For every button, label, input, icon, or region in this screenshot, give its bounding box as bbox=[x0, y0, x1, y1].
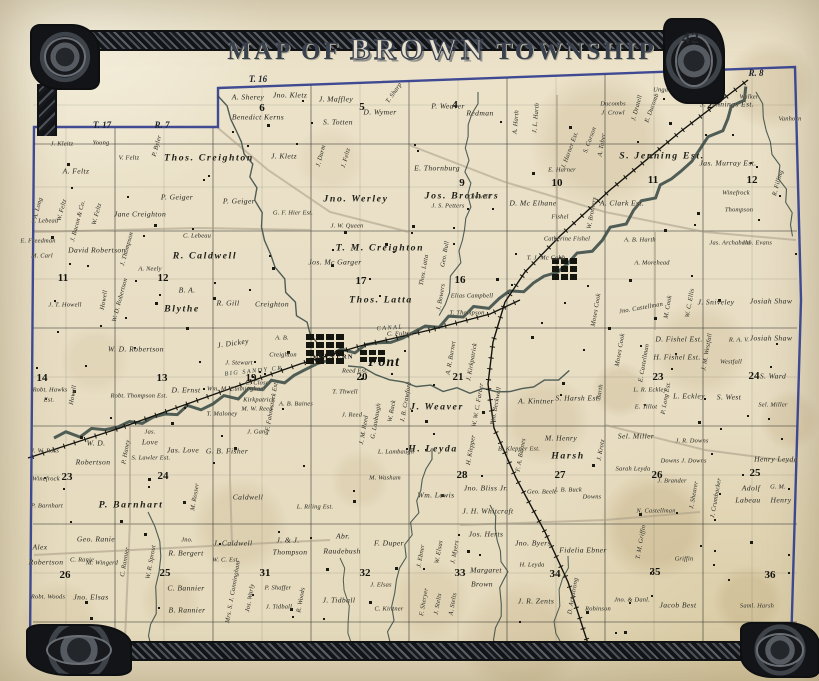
house-dot bbox=[433, 384, 435, 386]
parcel-owner-label: J. Maffley bbox=[319, 95, 353, 104]
parcel-owner-label: Abr. bbox=[336, 532, 350, 541]
house-dot bbox=[453, 243, 455, 245]
section-number: 35 bbox=[650, 566, 661, 578]
house-dot bbox=[788, 488, 790, 490]
house-dot bbox=[80, 436, 83, 439]
house-dot bbox=[479, 554, 481, 556]
section-number: 26 bbox=[60, 569, 71, 581]
parcel-owner-label: Jane Creighton bbox=[114, 210, 166, 219]
house-dot bbox=[492, 208, 494, 210]
railroad-line bbox=[28, 300, 520, 458]
house-dot bbox=[143, 235, 145, 237]
parcel-owner-label: A. Clark Est. bbox=[600, 199, 644, 208]
parcel-owner-label: J. Sniveley bbox=[698, 298, 735, 307]
house-dot bbox=[411, 232, 413, 234]
parcel-owner-label: L. Eckley bbox=[673, 392, 705, 401]
parcel-owner-label: Jno. & Danl. bbox=[614, 597, 650, 604]
parcel-owner-label: J. Caldwell bbox=[214, 539, 253, 548]
parcel-owner-label: J. Reed bbox=[342, 412, 362, 419]
house-dot bbox=[303, 465, 305, 467]
parcel-owner-label: Winefrock bbox=[722, 190, 749, 197]
parcel-owner-label: A. B. bbox=[275, 335, 289, 342]
parcel-owner-label: T. Thwell bbox=[332, 389, 357, 396]
parcel-owner-label: N. Castellman bbox=[636, 508, 675, 515]
parcel-owner-label: L. Riling Est. bbox=[297, 504, 334, 511]
parcel-owner-label: Labeau bbox=[735, 496, 760, 505]
house-dot bbox=[203, 179, 205, 181]
parcel-owner-label: Geo. Ranie bbox=[77, 535, 115, 544]
house-dot bbox=[221, 435, 223, 437]
parcel-owner-label: A. B. Harth bbox=[624, 237, 656, 244]
house-dot bbox=[562, 382, 565, 385]
house-dot bbox=[587, 285, 589, 287]
parcel-owner-label: Jno. Werley bbox=[323, 194, 388, 205]
village-block bbox=[552, 266, 559, 272]
parcel-owner-label: R. Gill bbox=[216, 299, 239, 308]
parcel-owner-label: J. W. Queen bbox=[331, 223, 364, 230]
section-number: 11 bbox=[648, 174, 658, 186]
house-dot bbox=[663, 98, 665, 100]
parcel-owner-label: P. Weaver bbox=[431, 102, 465, 111]
house-dot bbox=[750, 541, 753, 544]
parcel-owner-label: J. Tidball bbox=[323, 596, 356, 605]
house-dot bbox=[186, 327, 189, 330]
house-dot bbox=[788, 572, 790, 574]
house-dot bbox=[564, 302, 566, 304]
parcel-owner-label: E. Thornburg bbox=[414, 164, 460, 173]
parcel-owner-label: Walker bbox=[739, 94, 758, 101]
parcel-owner-label: V. Feltz bbox=[119, 155, 140, 162]
section-number: 23 bbox=[653, 371, 664, 383]
house-dot bbox=[36, 367, 38, 369]
parcel-owner-label: A. B. Baines bbox=[279, 401, 313, 408]
border-corner-bottom-right bbox=[740, 622, 819, 678]
parcel-owner-label: Robt. Hawks bbox=[33, 387, 68, 394]
house-dot bbox=[391, 373, 393, 375]
house-dot bbox=[629, 279, 632, 282]
parcel-owner-label: Jos. Mc Garger bbox=[308, 258, 361, 267]
parcel-owner-label: Alex bbox=[32, 543, 47, 552]
parcel-owner-label: F. Duper bbox=[374, 539, 404, 548]
house-dot bbox=[249, 289, 251, 291]
border-corner-bottom-left bbox=[26, 624, 132, 676]
section-number: 17 bbox=[356, 275, 367, 287]
village-block bbox=[316, 342, 324, 348]
parcel-owner-label: J. Weaver bbox=[410, 402, 464, 413]
house-dot bbox=[184, 407, 186, 409]
map-title: MAP OF BROWN TOWNSHIP bbox=[222, 33, 662, 67]
parcel-owner-label: E. Tillot bbox=[635, 404, 657, 411]
house-dot bbox=[310, 537, 312, 539]
section-number: 12 bbox=[747, 174, 758, 186]
house-dot bbox=[69, 263, 71, 265]
parcel-owner-label: Love bbox=[142, 438, 158, 447]
house-dot bbox=[135, 280, 137, 282]
house-dot bbox=[148, 478, 151, 481]
parcel-owner-label: Elias Campbell bbox=[451, 293, 493, 300]
house-dot bbox=[615, 632, 617, 634]
house-dot bbox=[496, 278, 499, 281]
parcel-owner-label: Jacob Best bbox=[659, 601, 696, 610]
parcel-owner-label: S. Ward bbox=[760, 372, 786, 381]
parcel-owner-label: Downs bbox=[583, 494, 602, 501]
house-dot bbox=[541, 322, 543, 324]
house-dot bbox=[453, 227, 455, 229]
parcel-owner-label: Jno. Elsas bbox=[73, 593, 108, 602]
section-number: 32 bbox=[360, 567, 371, 579]
house-dot bbox=[637, 141, 639, 143]
house-dot bbox=[369, 601, 372, 604]
house-dot bbox=[203, 388, 205, 390]
village-block bbox=[336, 334, 344, 340]
house-dot bbox=[87, 265, 89, 267]
house-dot bbox=[720, 428, 722, 430]
parcel-owner-label: Sarah Leyda bbox=[616, 466, 651, 473]
house-dot bbox=[125, 317, 127, 319]
house-dot bbox=[788, 554, 790, 556]
house-dot bbox=[651, 595, 653, 597]
parcel-owner-label: Harsh bbox=[551, 451, 585, 462]
house-dot bbox=[458, 534, 460, 536]
parcel-owner-label: G. F. Hier Est. bbox=[273, 210, 313, 217]
parcel-owner-label: H. Fishel Est. bbox=[653, 353, 700, 362]
parcel-owner-label: Winefrock bbox=[32, 476, 59, 483]
border-band-left bbox=[37, 84, 57, 136]
parcel-owner-label: Blythe bbox=[164, 304, 200, 315]
creek-path bbox=[148, 512, 161, 658]
parcel-owner-label: Josiah Shaw bbox=[750, 334, 793, 343]
house-dot bbox=[296, 143, 298, 145]
parcel-owner-label: C. Kintner bbox=[375, 606, 404, 613]
house-dot bbox=[120, 520, 123, 523]
parcel-owner-label: J. S. Petters bbox=[431, 203, 464, 210]
house-dot bbox=[624, 631, 627, 634]
house-dot bbox=[254, 361, 256, 363]
parcel-owner-label: T. Maloney bbox=[207, 411, 238, 418]
house-dot bbox=[592, 464, 595, 467]
house-dot bbox=[698, 421, 701, 424]
parcel-owner-label: Est. bbox=[44, 397, 55, 404]
parcel-owner-label: M. Wingerd bbox=[86, 560, 118, 567]
page-number: 42 bbox=[682, 30, 700, 48]
house-dot bbox=[795, 253, 797, 255]
house-dot bbox=[127, 196, 129, 198]
house-dot bbox=[691, 275, 693, 277]
parcel-owner-label: Thos. Latta bbox=[349, 295, 413, 306]
map-title-township-name: BROWN bbox=[350, 33, 487, 66]
house-dot bbox=[148, 486, 150, 488]
house-dot bbox=[267, 124, 270, 127]
parcel-owner-label: L. Lambaugh bbox=[378, 449, 414, 456]
village-block bbox=[336, 342, 344, 348]
house-dot bbox=[272, 267, 275, 270]
parcel-owner-label: T. J. Mc Cobb bbox=[527, 255, 566, 262]
house-dot bbox=[705, 134, 707, 136]
village-block bbox=[306, 334, 314, 340]
house-dot bbox=[326, 568, 329, 571]
map-title-prefix: MAP OF bbox=[227, 38, 350, 65]
section-number: 31 bbox=[260, 567, 271, 579]
house-dot bbox=[425, 420, 428, 423]
parcel-owner-label: T. Thompson bbox=[449, 310, 484, 317]
house-dot bbox=[676, 512, 678, 514]
section-number: 4 bbox=[452, 99, 458, 111]
village-block bbox=[561, 274, 568, 280]
parcel-owner-label: A. Morehead bbox=[634, 260, 669, 267]
parcel-owner-label: Jas. Murray Est. bbox=[699, 159, 756, 168]
parcel-owner-label: D. Wymer bbox=[363, 108, 396, 117]
parcel-owner-label: Ducombs bbox=[600, 101, 626, 108]
section-number: 13 bbox=[157, 372, 168, 384]
house-dot bbox=[694, 224, 696, 226]
village-block bbox=[561, 266, 568, 272]
house-dot bbox=[714, 519, 716, 521]
house-dot bbox=[758, 219, 760, 221]
section-number: 5 bbox=[359, 101, 365, 113]
parcel-owner-label: H. Leyda bbox=[519, 562, 544, 569]
plat-map-page: A. ShereyJno. KletzJ. MaffleyT. SharpD. … bbox=[0, 0, 819, 681]
parcel-owner-label: A. Sherey bbox=[232, 93, 264, 102]
house-dot bbox=[532, 172, 535, 175]
parcel-owner-label: Robinson bbox=[585, 606, 611, 613]
parcel-owner-label: R. A. V. bbox=[729, 337, 749, 344]
parcel-owner-label: Creighton bbox=[255, 300, 289, 309]
section-number: 16 bbox=[455, 274, 466, 286]
parcel-owner-label: Young bbox=[93, 140, 110, 147]
section-number: 14 bbox=[37, 372, 48, 384]
house-dot bbox=[467, 550, 470, 553]
house-dot bbox=[232, 131, 234, 133]
section-number: 24 bbox=[158, 470, 169, 482]
parcel-owner-label: Jas. Love bbox=[167, 446, 199, 455]
parcel-owner-label: Caldwell bbox=[233, 493, 264, 502]
section-number: 24 bbox=[749, 370, 760, 382]
house-dot bbox=[779, 195, 781, 197]
village-block bbox=[360, 350, 367, 355]
parcel-owner-label: G. B. Fisher bbox=[206, 447, 248, 456]
parcel-owner-label: Thompson bbox=[725, 207, 753, 214]
section-number: 36 bbox=[765, 569, 776, 581]
parcel-owner-label: Vanhorn bbox=[778, 116, 801, 123]
parcel-owner-label: L. R. Eckley bbox=[633, 387, 666, 394]
range-township-label: R. 8 bbox=[748, 68, 763, 78]
section-number: 28 bbox=[457, 469, 468, 481]
house-dot bbox=[414, 144, 416, 146]
parcel-owner-label: J. Tidball bbox=[266, 604, 292, 611]
house-dot bbox=[711, 453, 713, 455]
house-dot bbox=[311, 122, 313, 124]
parcel-owner-label: A. Feltz bbox=[63, 167, 90, 176]
range-township-label: R. 7 bbox=[154, 120, 169, 130]
parcel-owner-label: W. D. bbox=[87, 439, 106, 448]
parcel-owner-label: Crowell bbox=[468, 194, 490, 201]
parcel-owner-label: Henry Leyda bbox=[754, 455, 798, 464]
village-block bbox=[570, 266, 577, 272]
village-block bbox=[316, 334, 324, 340]
village-name-label: Font bbox=[368, 355, 400, 371]
house-dot bbox=[71, 187, 73, 189]
section-number: 34 bbox=[550, 568, 561, 580]
house-dot bbox=[417, 150, 419, 152]
parcel-owner-label: T. M. Creighton bbox=[336, 243, 424, 254]
parcel-owner-label: Jas. bbox=[145, 429, 156, 436]
parcel-owner-label: C. Fulton bbox=[387, 331, 413, 338]
section-number: 25 bbox=[750, 467, 761, 479]
parcel-owner-label: David Robertson bbox=[68, 246, 126, 255]
parcel-owner-label: R. Caldwell bbox=[173, 251, 237, 262]
house-dot bbox=[213, 462, 215, 464]
parcel-owner-label: S. Totten bbox=[323, 118, 353, 127]
section-number: 23 bbox=[62, 471, 73, 483]
parcel-owner-label: S. West bbox=[717, 393, 741, 402]
village-block bbox=[360, 357, 367, 362]
parcel-owner-label: Catherine Fishel bbox=[544, 236, 590, 243]
parcel-owner-label: Redman bbox=[466, 109, 493, 118]
house-dot bbox=[85, 365, 87, 367]
parcel-owner-label: J. R. Zents bbox=[518, 597, 554, 606]
parcel-owner-label: Josiah Shaw bbox=[750, 297, 793, 306]
parcel-owner-label: J. Elsas bbox=[370, 582, 391, 589]
parcel-owner-label: Westfall bbox=[720, 359, 742, 366]
house-dot bbox=[714, 550, 716, 552]
house-dot bbox=[344, 231, 347, 234]
parcel-owner-label: Jno. Byers bbox=[515, 539, 551, 548]
house-dot bbox=[90, 617, 93, 620]
parcel-owner-label: J. Kleitz bbox=[51, 141, 74, 148]
house-dot bbox=[608, 327, 611, 330]
parcel-owner-label: P. Geiger bbox=[223, 197, 255, 206]
parcel-owner-label: J. T. Howell bbox=[48, 302, 81, 309]
house-dot bbox=[531, 336, 534, 339]
parcel-owner-label: C. Bannier bbox=[167, 584, 204, 593]
house-dot bbox=[158, 607, 160, 609]
parcel-owner-label: Saml. Harsh bbox=[740, 603, 774, 610]
house-dot bbox=[697, 212, 700, 215]
house-dot bbox=[700, 545, 702, 547]
village-block bbox=[326, 342, 334, 348]
house-dot bbox=[154, 224, 157, 227]
house-dot bbox=[732, 134, 734, 136]
house-dot bbox=[770, 366, 772, 368]
parcel-owner-label: E. Freedman bbox=[20, 238, 55, 245]
house-dot bbox=[332, 249, 334, 251]
parcel-owner-label: Robt. Woods bbox=[31, 594, 65, 601]
parcel-owner-label: Benedict Kerns bbox=[232, 113, 284, 122]
house-dot bbox=[192, 228, 194, 230]
village-block bbox=[306, 342, 314, 348]
house-dot bbox=[85, 601, 88, 604]
house-dot bbox=[302, 100, 304, 102]
section-number: 10 bbox=[552, 177, 563, 189]
house-dot bbox=[70, 521, 72, 523]
house-dot bbox=[282, 408, 284, 410]
house-dot bbox=[144, 533, 147, 536]
house-dot bbox=[208, 175, 210, 177]
house-dot bbox=[776, 343, 778, 345]
section-number: 20 bbox=[357, 371, 368, 383]
house-dot bbox=[412, 225, 415, 228]
house-dot bbox=[433, 433, 435, 435]
house-dot bbox=[713, 564, 715, 566]
parcel-owner-label: J. W. Ross bbox=[31, 448, 59, 455]
parcel-owner-label: Jno. Kletz bbox=[273, 91, 307, 100]
parcel-owner-label: Thos. Creighton bbox=[164, 153, 254, 164]
parcel-owner-label: Sel. Miller bbox=[618, 432, 654, 441]
parcel-owner-label: P. Shaffer bbox=[265, 585, 292, 592]
house-dot bbox=[404, 350, 406, 352]
parcel-owner-label: Geo. Beele bbox=[527, 489, 557, 496]
parcel-owner-label: J. H. Whitcraft bbox=[462, 507, 513, 516]
parcel-owner-label: Brown bbox=[471, 580, 493, 589]
house-dot bbox=[199, 361, 201, 363]
house-dot bbox=[247, 145, 249, 147]
parcel-owner-label: C. Lebeau bbox=[183, 233, 211, 240]
parcel-owner-label: D. Fishel Est. bbox=[655, 335, 702, 344]
range-township-label: T. 16 bbox=[249, 74, 267, 84]
parcel-owner-label: Margaret bbox=[470, 566, 502, 575]
parcel-owner-label: Griffin bbox=[675, 556, 694, 563]
village-block bbox=[552, 274, 559, 280]
parcel-owner-label: B. Klepper Est. bbox=[498, 446, 540, 453]
parcel-owner-label: Sel. Miller bbox=[758, 402, 787, 409]
house-dot bbox=[467, 208, 469, 210]
parcel-owner-label: J. & J. bbox=[276, 536, 299, 545]
parcel-owner-label: R. Bergert bbox=[168, 549, 203, 558]
parcel-owner-label: J. Lebeau bbox=[32, 218, 59, 225]
parcel-owner-label: P. Barnhart bbox=[99, 500, 164, 511]
parcel-owner-label: W. D. Robertson bbox=[108, 345, 164, 354]
house-dot bbox=[669, 122, 672, 125]
house-dot bbox=[323, 618, 325, 620]
section-number: 33 bbox=[455, 567, 466, 579]
house-dot bbox=[171, 422, 174, 425]
parcel-owner-label: Jos. Herts bbox=[469, 530, 504, 539]
house-dot bbox=[155, 302, 158, 305]
house-dot bbox=[742, 474, 744, 476]
map-title-suffix: TOWNSHIP bbox=[487, 38, 657, 65]
house-dot bbox=[353, 490, 355, 492]
house-dot bbox=[63, 488, 65, 490]
parcel-owner-label: A. Kintner bbox=[518, 397, 554, 406]
house-dot bbox=[423, 568, 425, 570]
section-number: 25 bbox=[160, 567, 171, 579]
parcel-owner-label: Wm. M. Cunningham bbox=[207, 386, 265, 393]
parcel-owner-label: B. A. bbox=[179, 286, 196, 295]
parcel-owner-label: S. Harsh Est. bbox=[555, 394, 600, 403]
section-number: 26 bbox=[652, 469, 663, 481]
parcel-owner-label: M. Carl bbox=[31, 253, 53, 260]
house-dot bbox=[269, 255, 271, 257]
section-number: 6 bbox=[259, 102, 265, 114]
parcel-owner-label: Creighton bbox=[269, 352, 296, 359]
parcel-owner-label: Jno. Evans bbox=[742, 240, 772, 247]
house-dot bbox=[481, 475, 483, 477]
section-number: 9 bbox=[459, 177, 465, 189]
house-dot bbox=[159, 294, 161, 296]
border-corner-top-left bbox=[30, 24, 100, 90]
house-dot bbox=[500, 121, 502, 123]
house-dot bbox=[278, 531, 280, 533]
parcel-owner-label: M. Washam bbox=[369, 475, 401, 482]
house-dot bbox=[519, 621, 521, 623]
house-dot bbox=[395, 567, 398, 570]
range-township-label: T. 17 bbox=[93, 120, 111, 130]
village-block bbox=[570, 274, 577, 280]
house-dot bbox=[569, 126, 572, 129]
parcel-owner-label: E. Harner bbox=[548, 167, 576, 174]
parcel-owner-label: J. Downs bbox=[681, 458, 706, 465]
section-number: 21 bbox=[453, 371, 464, 383]
